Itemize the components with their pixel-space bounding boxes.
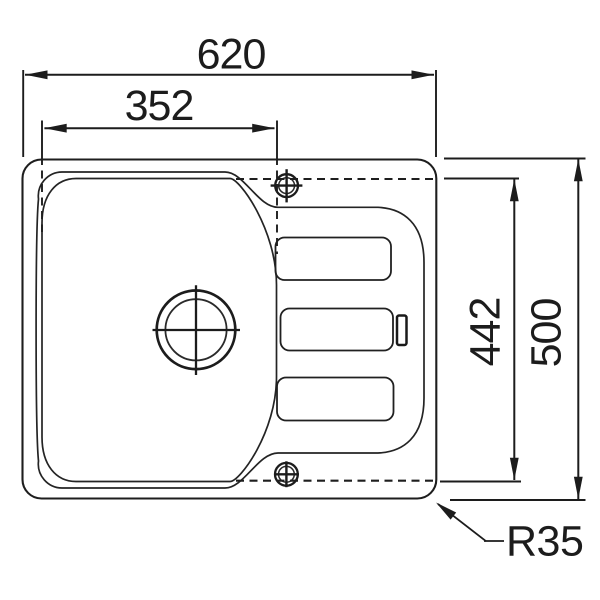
svg-text:442: 442 [462,298,510,367]
svg-text:500: 500 [523,299,571,368]
svg-text:352: 352 [125,82,194,130]
svg-text:620: 620 [197,31,266,79]
svg-text:R35: R35 [506,518,583,566]
